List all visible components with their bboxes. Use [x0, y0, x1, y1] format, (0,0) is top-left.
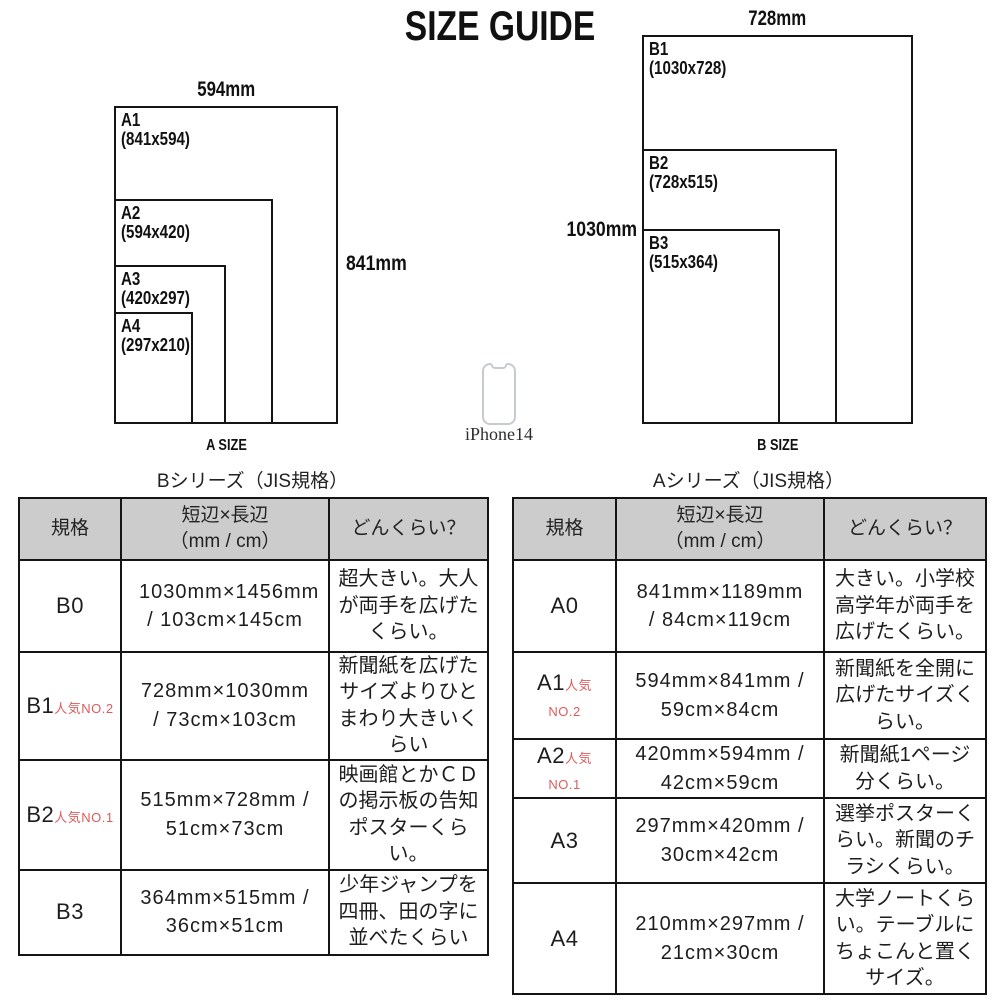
table-row: A1人気NO.2594mm×841mm / 59cm×84cm新聞紙を全開に広げ…	[513, 652, 986, 739]
size-label: A2	[537, 743, 565, 768]
size-label: B2	[26, 802, 54, 827]
size-cell: A2人気NO.1	[513, 739, 616, 798]
size-label: A4	[551, 926, 579, 951]
b-series-table-section: Bシリーズ（JIS規格） 規格短辺×長辺 （mm / cm）どんくらい？B010…	[18, 470, 487, 956]
table-row: B3364mm×515mm / 36cm×51cm少年ジャンプを四冊、田の字に並…	[19, 870, 488, 955]
header-cell: 規格	[19, 498, 121, 560]
header-cell: どんくらい？	[329, 498, 488, 560]
b-size-diagram: 728mm 1030mm B1 (1030x728) B2 (728x515) …	[642, 35, 913, 424]
a3-label: A3 (420x297)	[121, 270, 203, 307]
size-cell: A0	[513, 560, 616, 652]
size-cell: B3	[19, 870, 121, 955]
iphone-notch-icon	[491, 363, 507, 369]
header-row: 規格短辺×長辺 （mm / cm）どんくらい？	[513, 498, 986, 560]
a4-rect: A4 (297x210)	[114, 312, 193, 424]
size-cell: A4	[513, 883, 616, 994]
description-cell: 大学ノートくらい。テーブルにちょこんと置くサイズ。	[824, 883, 986, 994]
b-height-label: 1030mm	[553, 218, 637, 242]
dimensions-cell: 515mm×728mm / 51cm×73cm	[121, 760, 329, 870]
table-row: A3297mm×420mm / 30cm×42cm選挙ポスターくらい。新聞のチラ…	[513, 798, 986, 883]
size-label: B1	[26, 693, 54, 718]
a-size-diagram: 594mm 841mm A1 (841x594) A2 (594x420) A3…	[114, 106, 338, 424]
b3-label: B3 (515x364)	[649, 234, 731, 271]
a2-label: A2 (594x420)	[121, 204, 203, 241]
size-cell: A1人気NO.2	[513, 652, 616, 739]
dimensions-cell: 210mm×297mm / 21cm×30cm	[616, 883, 824, 994]
table-row: B1人気NO.2728mm×1030mm / 73cm×103cm新聞紙を広げた…	[19, 652, 488, 760]
description-cell: 選挙ポスターくらい。新聞のチラシくらい。	[824, 798, 986, 883]
iphone-icon	[482, 363, 516, 425]
description-cell: 大きい。小学校高学年が両手を広げたくらい。	[824, 560, 986, 652]
dimensions-cell: 364mm×515mm / 36cm×51cm	[121, 870, 329, 955]
b3-rect: B3 (515x364)	[642, 229, 780, 424]
a-height-label: 841mm	[346, 252, 418, 276]
description-cell: 映画館とかＣＤの掲示板の告知ポスターくらい。	[329, 760, 488, 870]
description-cell: 少年ジャンプを四冊、田の字に並べたくらい	[329, 870, 488, 955]
a-series-table-section: Aシリーズ（JIS規格） 規格短辺×長辺 （mm / cm）どんくらい？A084…	[512, 470, 985, 995]
b-width-label: 728mm	[642, 7, 913, 31]
header-cell: 規格	[513, 498, 616, 560]
table-row: A4210mm×297mm / 21cm×30cm大学ノートくらい。テーブルにち…	[513, 883, 986, 994]
description-cell: 新聞紙を全開に広げたサイズくらい。	[824, 652, 986, 739]
dimensions-cell: 841mm×1189mm / 84cm×119cm	[616, 560, 824, 652]
b-series-table-title: Bシリーズ（JIS規格）	[18, 470, 487, 497]
size-guide-page: SIZE GUIDE 594mm 841mm A1 (841x594) A2 (…	[0, 0, 1000, 1000]
size-label: A3	[551, 828, 579, 853]
size-label: A1	[537, 670, 565, 695]
size-cell: B2人気NO.1	[19, 760, 121, 870]
b1-label: B1 (1030x728)	[649, 40, 741, 77]
popularity-badge: 人気NO.2	[54, 701, 113, 716]
b-series-table: 規格短辺×長辺 （mm / cm）どんくらい？B01030mm×1456mm /…	[18, 497, 489, 956]
dimensions-cell: 728mm×1030mm / 73cm×103cm	[121, 652, 329, 760]
dimensions-cell: 297mm×420mm / 30cm×42cm	[616, 798, 824, 883]
description-cell: 超大きい。大人が両手を広げたくらい。	[329, 560, 488, 652]
header-cell: どんくらい？	[824, 498, 986, 560]
description-cell: 新聞紙1ページ分くらい。	[824, 739, 986, 798]
iphone-label: iPhone14	[432, 424, 566, 445]
table-row: A2人気NO.1420mm×594mm / 42cm×59cm新聞紙1ページ分く…	[513, 739, 986, 798]
size-cell: B1人気NO.2	[19, 652, 121, 760]
description-cell: 新聞紙を広げたサイズよりひとまわり大きいくらい	[329, 652, 488, 760]
size-label: B0	[56, 593, 84, 618]
dimensions-cell: 420mm×594mm / 42cm×59cm	[616, 739, 824, 798]
a-width-label: 594mm	[114, 78, 338, 102]
a-series-table-title: Aシリーズ（JIS規格）	[512, 470, 985, 497]
size-label: A0	[551, 593, 579, 618]
b2-label: B2 (728x515)	[649, 154, 731, 191]
size-label: B3	[56, 899, 84, 924]
table-row: B01030mm×1456mm / 103cm×145cm超大きい。大人が両手を…	[19, 560, 488, 652]
header-cell: 短辺×長辺 （mm / cm）	[121, 498, 329, 560]
dimensions-cell: 1030mm×1456mm / 103cm×145cm	[121, 560, 329, 652]
size-cell: A3	[513, 798, 616, 883]
header-row: 規格短辺×長辺 （mm / cm）どんくらい？	[19, 498, 488, 560]
a-size-caption: A SIZE	[114, 437, 338, 455]
a4-label: A4 (297x210)	[121, 317, 203, 354]
b-size-caption: B SIZE	[642, 437, 913, 455]
a1-label: A1 (841x594)	[121, 111, 203, 148]
dimensions-cell: 594mm×841mm / 59cm×84cm	[616, 652, 824, 739]
table-row: B2人気NO.1515mm×728mm / 51cm×73cm映画館とかＣＤの掲…	[19, 760, 488, 870]
popularity-badge: 人気NO.1	[54, 810, 113, 825]
size-cell: B0	[19, 560, 121, 652]
a-series-table: 規格短辺×長辺 （mm / cm）どんくらい？A0841mm×1189mm / …	[512, 497, 987, 995]
page-title-text: SIZE GUIDE	[405, 2, 595, 50]
header-cell: 短辺×長辺 （mm / cm）	[616, 498, 824, 560]
table-row: A0841mm×1189mm / 84cm×119cm大きい。小学校高学年が両手…	[513, 560, 986, 652]
